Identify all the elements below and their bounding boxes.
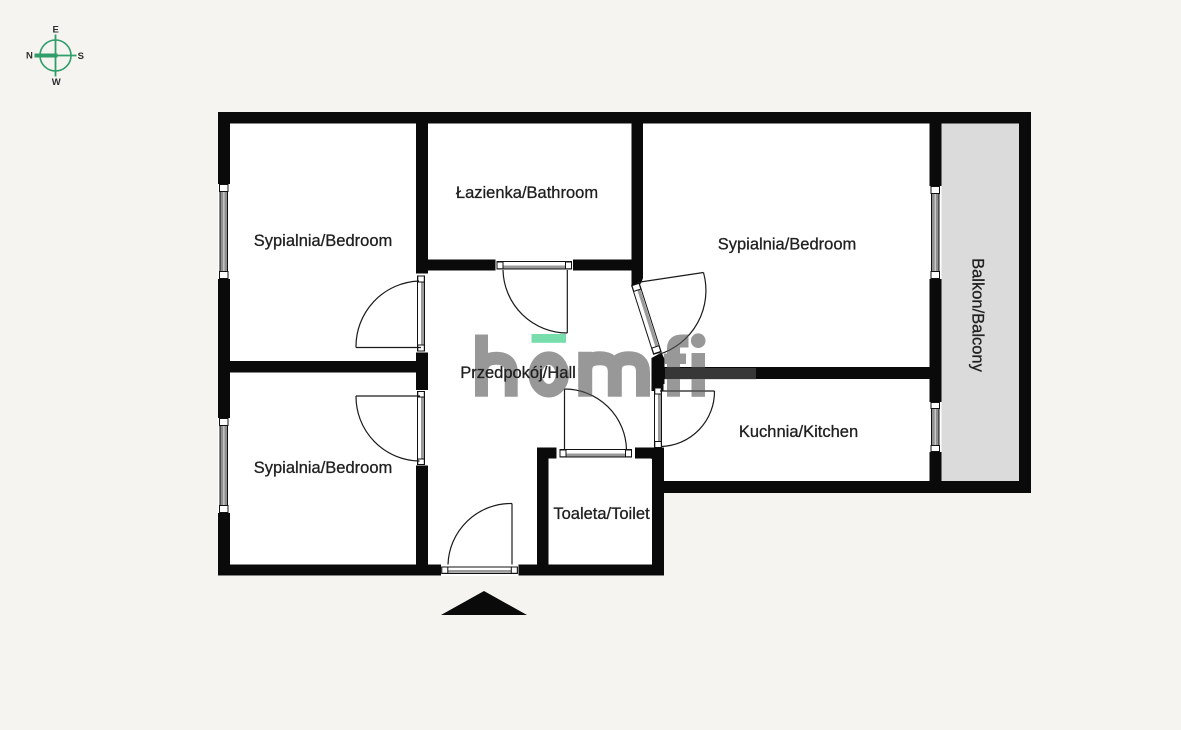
svg-text:Sypialnia/Bedroom: Sypialnia/Bedroom	[254, 232, 393, 250]
svg-text:Sypialnia/Bedroom: Sypialnia/Bedroom	[718, 236, 857, 254]
svg-text:E: E	[53, 25, 59, 36]
svg-text:Łazienka/Bathroom: Łazienka/Bathroom	[456, 184, 598, 202]
svg-text:Sypialnia/Bedroom: Sypialnia/Bedroom	[254, 459, 393, 477]
svg-text:N: N	[26, 50, 33, 61]
svg-text:Balkon/Balcony: Balkon/Balcony	[969, 258, 987, 372]
svg-text:Przedpokój/Hall: Przedpokój/Hall	[460, 364, 576, 382]
svg-text:Toaleta/Toilet: Toaleta/Toilet	[553, 505, 650, 523]
svg-text:W: W	[52, 77, 61, 88]
svg-text:Kuchnia/Kitchen: Kuchnia/Kitchen	[739, 423, 858, 441]
svg-text:S: S	[78, 51, 84, 62]
